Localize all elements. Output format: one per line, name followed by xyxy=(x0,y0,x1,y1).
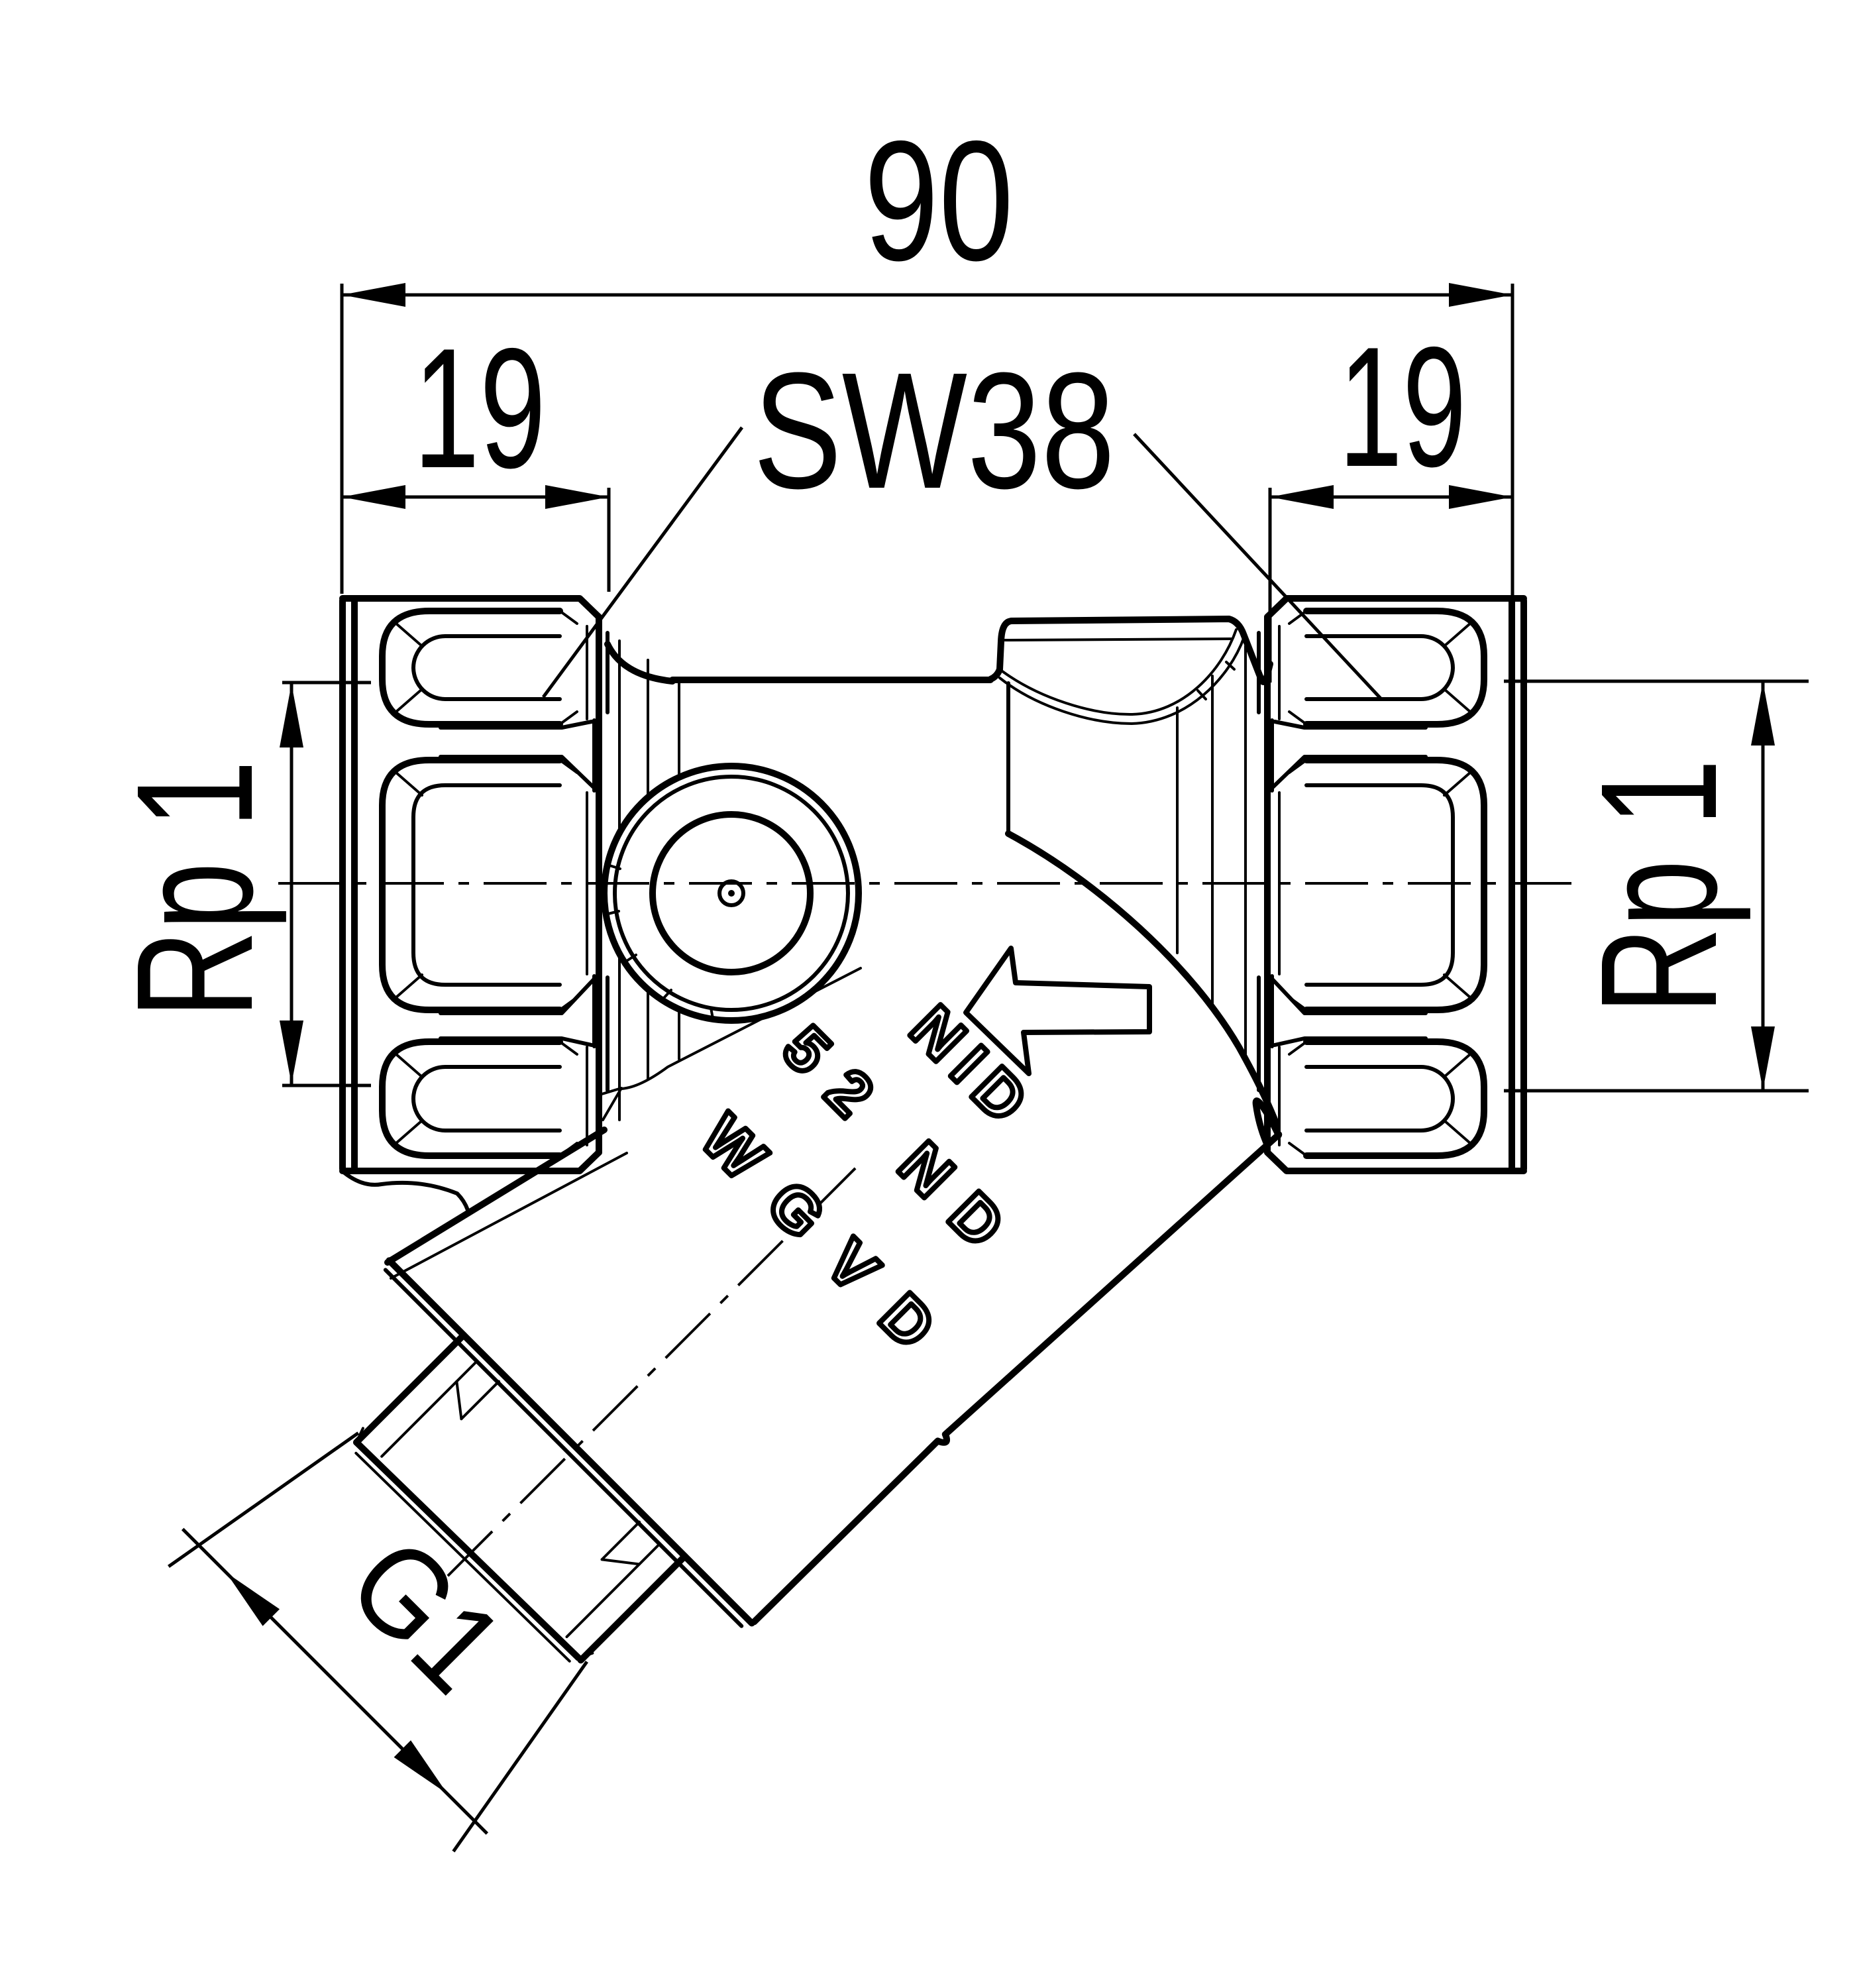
svg-text:Rp 1: Rp 1 xyxy=(1566,759,1751,1015)
svg-text:19: 19 xyxy=(413,312,546,504)
svg-text:90: 90 xyxy=(864,105,1014,296)
svg-text:19: 19 xyxy=(1339,311,1467,502)
svg-text:SW38: SW38 xyxy=(753,338,1115,523)
svg-text:Rp 1: Rp 1 xyxy=(102,760,287,1019)
